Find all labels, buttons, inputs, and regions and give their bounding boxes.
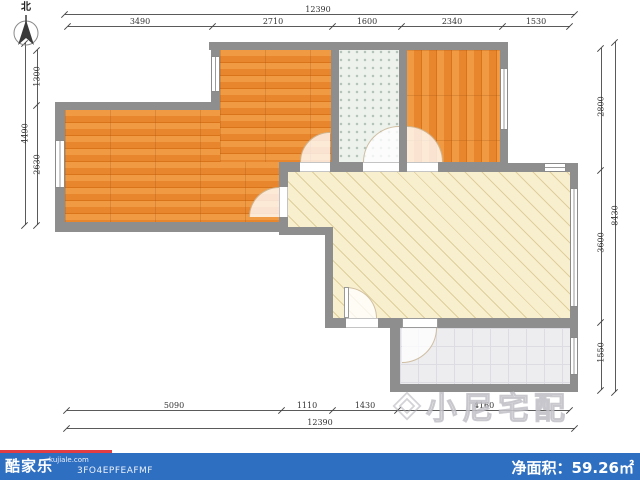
dim-bottom-total: 12390 <box>303 417 337 428</box>
door-opening <box>407 162 438 172</box>
wall <box>399 162 407 172</box>
wall <box>209 42 508 50</box>
dimension-line <box>67 428 575 429</box>
dim-left-2: 2630 <box>32 148 43 182</box>
brand-domain: kujiale.com <box>49 456 89 464</box>
door-opening <box>279 187 288 217</box>
wall <box>570 163 578 188</box>
dim-top-3: 1600 <box>350 16 384 27</box>
wall <box>325 318 346 328</box>
window <box>211 56 220 92</box>
dim-right-1: 2800 <box>596 90 607 124</box>
north-label: 北 <box>8 2 44 13</box>
window <box>500 68 508 130</box>
dim-top-4: 2340 <box>435 16 469 27</box>
window <box>544 163 566 172</box>
wall <box>399 50 407 162</box>
north-indicator: 北 <box>8 2 44 50</box>
door-opening-entry <box>346 318 378 328</box>
wall <box>390 384 578 392</box>
wall <box>279 162 288 187</box>
north-arrow-icon <box>8 13 44 49</box>
brand-logo: 酷家乐 <box>5 455 53 476</box>
window <box>570 337 578 375</box>
dim-left-1: 1300 <box>32 60 43 94</box>
window <box>570 188 578 307</box>
footer-bar: 酷家乐 kujiale.com 3FO4EPFEAFMF 净面积：59.26㎡ <box>0 453 640 480</box>
wall <box>330 162 363 172</box>
net-area: 净面积：59.26㎡ <box>512 457 634 478</box>
watermark-logo-icon <box>392 391 422 421</box>
dim-right-2: 3600 <box>596 226 607 260</box>
wall <box>211 42 220 56</box>
footer-accent-strip <box>0 450 112 453</box>
door-opening <box>363 162 399 172</box>
dim-bottom-2: 1110 <box>290 400 324 411</box>
door-leaf-balcony <box>402 318 438 328</box>
wall <box>438 162 508 172</box>
wall <box>55 222 288 232</box>
wall <box>55 102 65 140</box>
net-area-value: 59.26㎡ <box>572 459 634 477</box>
dim-left-total: 4490 <box>20 117 31 151</box>
wall <box>55 102 220 110</box>
floorplan-canvas: 北 <box>0 0 640 480</box>
dim-top-1: 3490 <box>123 16 157 27</box>
wall <box>325 227 333 318</box>
dim-bottom-4: 4160 <box>467 400 501 411</box>
wall <box>288 162 300 172</box>
net-area-label: 净面积： <box>512 459 572 477</box>
door-opening <box>300 162 330 172</box>
wall <box>438 318 578 328</box>
door-leaf-entry <box>344 287 349 318</box>
plan-code: 3FO4EPFEAFMF <box>77 466 153 476</box>
dim-right-total: 8430 <box>610 199 621 233</box>
dim-bottom-3: 1430 <box>348 400 382 411</box>
wall <box>390 318 400 392</box>
wall <box>500 163 544 172</box>
dim-top-5: 1530 <box>519 16 553 27</box>
dim-top-total: 12390 <box>301 4 335 15</box>
dim-bottom-1: 5090 <box>157 400 191 411</box>
dim-top-2: 2710 <box>256 16 290 27</box>
wall <box>500 42 508 68</box>
wall <box>331 50 339 162</box>
window <box>55 140 65 188</box>
dim-right-3: 1550 <box>596 336 607 370</box>
